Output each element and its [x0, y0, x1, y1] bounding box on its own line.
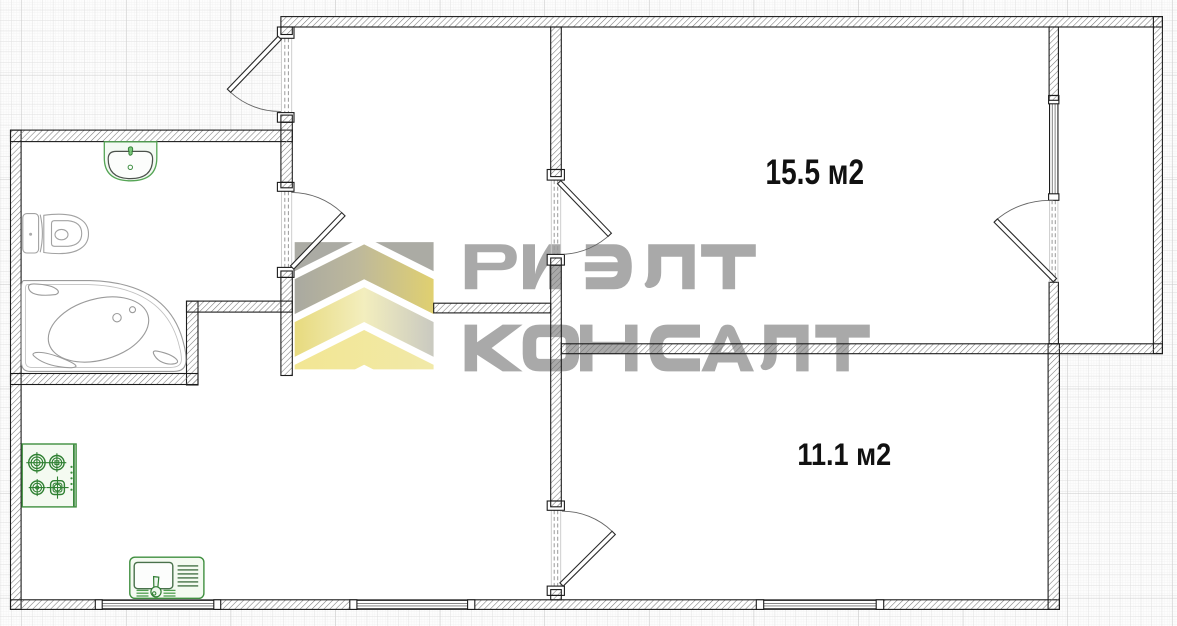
- svg-text:15.5 м2: 15.5 м2: [766, 152, 865, 192]
- svg-text:11.1 м2: 11.1 м2: [797, 437, 891, 472]
